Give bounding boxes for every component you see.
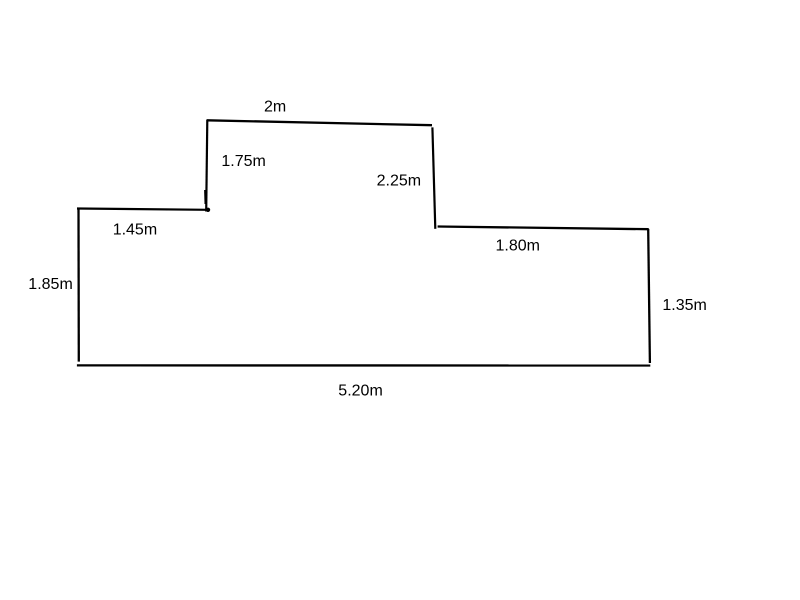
- svg-text:2m: 2m: [264, 99, 286, 116]
- svg-text:1.35m: 1.35m: [662, 297, 706, 314]
- svg-text:2.25m: 2.25m: [377, 173, 421, 190]
- svg-text:1.80m: 1.80m: [496, 238, 540, 255]
- svg-text:1.45m: 1.45m: [113, 222, 157, 239]
- svg-text:5.20m: 5.20m: [338, 383, 382, 400]
- svg-text:1.85m: 1.85m: [28, 276, 72, 293]
- svg-text:1.75m: 1.75m: [221, 153, 265, 170]
